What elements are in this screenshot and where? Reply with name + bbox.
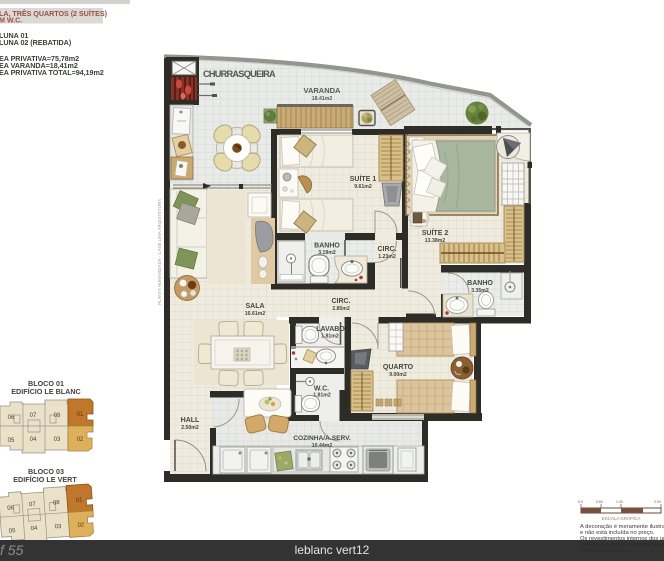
- svg-text:3.35m2: 3.35m2: [471, 288, 489, 294]
- svg-text:Memorial Descritivo.: Memorial Descritivo.: [580, 548, 633, 554]
- svg-text:SUÍTE 2: SUÍTE 2: [422, 228, 449, 237]
- svg-text:3.19m2: 3.19m2: [318, 250, 336, 256]
- svg-text:03: 03: [54, 437, 61, 443]
- svg-text:10.44m2: 10.44m2: [312, 443, 333, 449]
- svg-text:M W.C.: M W.C.: [0, 16, 22, 25]
- svg-text:2.50m2: 2.50m2: [181, 425, 199, 431]
- svg-text:EA PRIVATIVA TOTAL=94,19m2: EA PRIVATIVA TOTAL=94,19m2: [0, 68, 104, 77]
- svg-text:COZINHA/A.SERV.: COZINHA/A.SERV.: [293, 435, 351, 442]
- svg-text:EDIFÍCIO LE VERT: EDIFÍCIO LE VERT: [13, 475, 77, 484]
- svg-text:BANHO: BANHO: [314, 243, 340, 250]
- svg-text:1.00: 1.00: [616, 500, 623, 504]
- svg-text:07: 07: [30, 413, 37, 419]
- svg-text:13.38m2: 13.38m2: [425, 238, 446, 244]
- svg-text:1.81m2: 1.81m2: [321, 334, 339, 340]
- svg-text:f 55: f 55: [0, 542, 24, 558]
- svg-text:CHURRASQUEIRA: CHURRASQUEIRA: [203, 69, 276, 79]
- svg-text:HALL: HALL: [181, 417, 200, 424]
- svg-text:0.0: 0.0: [578, 500, 583, 504]
- svg-text:CIRC.: CIRC.: [331, 298, 350, 305]
- svg-text:LAVABO: LAVABO: [316, 326, 345, 333]
- svg-text:04: 04: [30, 437, 37, 443]
- svg-text:0.50: 0.50: [596, 500, 603, 504]
- svg-text:1.23m2: 1.23m2: [378, 254, 396, 260]
- svg-text:06: 06: [8, 415, 15, 421]
- svg-text:BANHO: BANHO: [467, 280, 493, 287]
- svg-text:W.C.: W.C.: [314, 386, 329, 393]
- svg-text:1.81m2: 1.81m2: [313, 393, 331, 399]
- svg-text:ESCALA GRÁFICA: ESCALA GRÁFICA: [602, 515, 641, 521]
- svg-text:SALA: SALA: [245, 303, 264, 310]
- svg-text:2.00: 2.00: [654, 500, 661, 504]
- svg-text:LUNA 02 (REBATIDA): LUNA 02 (REBATIDA): [0, 38, 72, 47]
- svg-text:18.41m2: 18.41m2: [312, 96, 333, 102]
- svg-text:01: 01: [77, 412, 84, 418]
- svg-text:QUARTO: QUARTO: [383, 364, 414, 371]
- svg-text:leblanc vert12: leblanc vert12: [295, 543, 370, 557]
- svg-text:9.61m2: 9.61m2: [354, 184, 372, 190]
- svg-text:05: 05: [8, 438, 15, 444]
- svg-text:08: 08: [54, 413, 61, 419]
- svg-text:9.00m2: 9.00m2: [389, 372, 407, 378]
- svg-text:02: 02: [77, 437, 84, 443]
- svg-text:CIRC.: CIRC.: [377, 246, 396, 253]
- svg-text:VARANDA: VARANDA: [304, 86, 342, 95]
- svg-text:SUÍTE 1: SUÍTE 1: [350, 174, 377, 183]
- svg-text:EDIFÍCIO LE BLANC: EDIFÍCIO LE BLANC: [11, 387, 80, 396]
- svg-text:16.61m2: 16.61m2: [245, 311, 266, 317]
- svg-text:2.85m2: 2.85m2: [332, 306, 350, 312]
- svg-text:PLANTA HUMANIZADA - CASÉ LIMA: PLANTA HUMANIZADA - CASÉ LIMA ARQUITETUR…: [157, 199, 162, 305]
